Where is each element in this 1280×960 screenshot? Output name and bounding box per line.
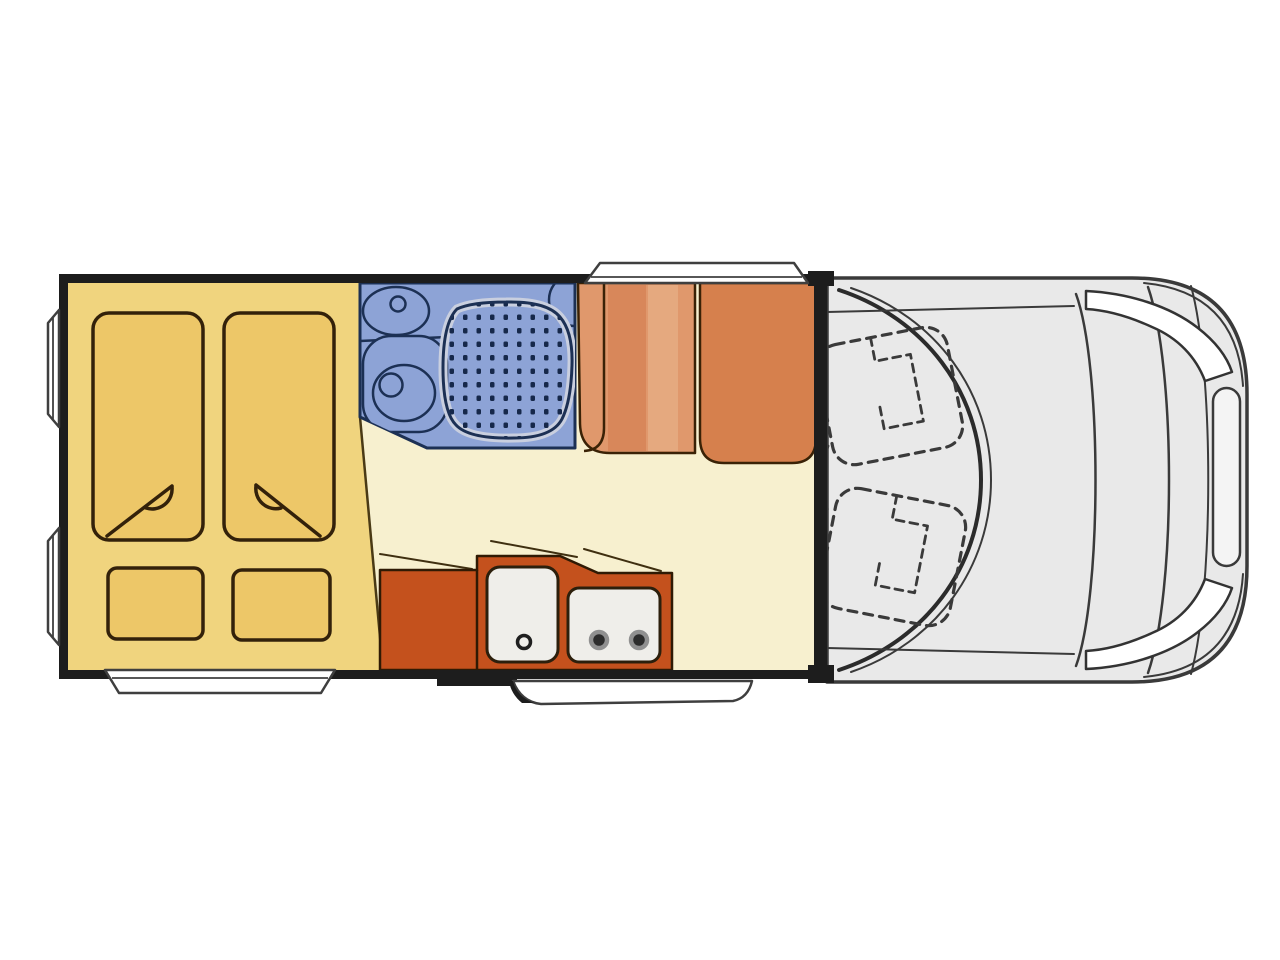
- dinette-seat-right: [700, 283, 816, 463]
- bulkhead-corner-top: [808, 271, 834, 286]
- kitchen-hob: [568, 588, 660, 662]
- bed-right-duvet: [224, 313, 334, 540]
- floorplan-canvas: [0, 0, 1280, 960]
- bulkhead-corner-bottom: [808, 665, 834, 683]
- bed-right-pillow: [233, 570, 330, 640]
- wall-rear: [59, 274, 68, 679]
- wall-cab-bulkhead: [814, 274, 827, 679]
- rear-bedroom: [68, 283, 383, 670]
- dinette-seat-left-highlight: [648, 285, 678, 451]
- dinette-seat-left-stripe: [608, 285, 646, 451]
- sink-drain: [518, 636, 531, 649]
- cab: [814, 278, 1247, 682]
- shower-tray: [443, 302, 572, 438]
- motorhome-floorplan: [0, 0, 1280, 960]
- hob-burner-right: [631, 632, 647, 648]
- bedroom-side-window: [105, 670, 335, 693]
- dinette-window: [585, 263, 808, 283]
- entry-door-step: [513, 681, 752, 704]
- washroom: [360, 274, 601, 448]
- bed-left-pillow: [108, 568, 203, 639]
- hob-burner-left: [591, 632, 607, 648]
- door-threshold: [437, 671, 517, 686]
- front-grille: [1213, 388, 1240, 566]
